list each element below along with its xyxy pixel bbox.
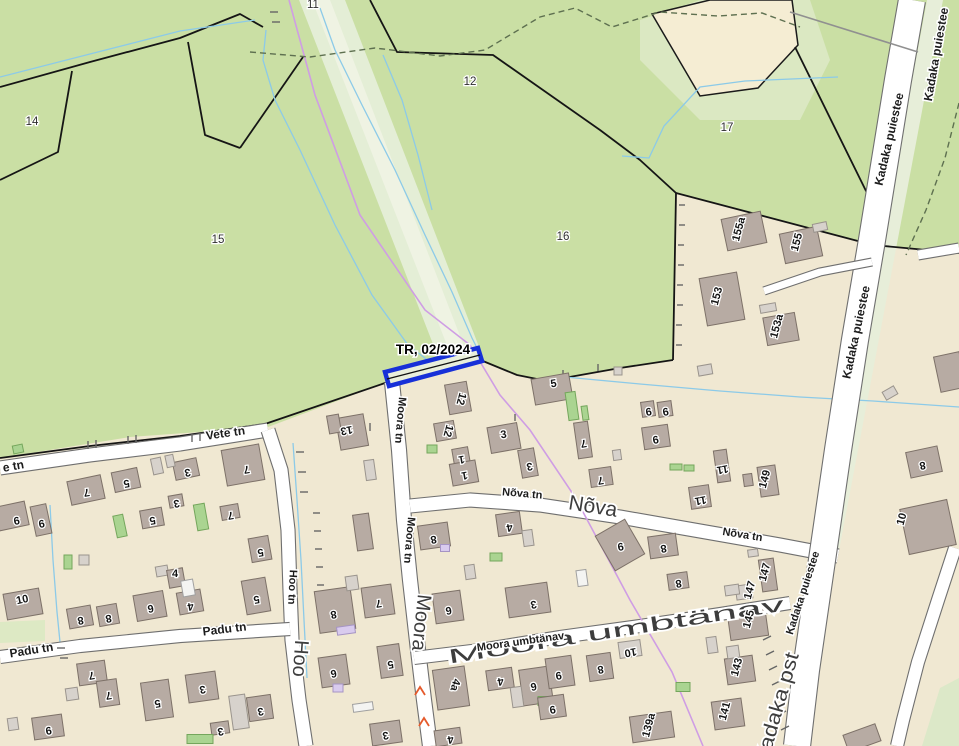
building	[522, 529, 534, 546]
building	[427, 445, 437, 453]
parcel-number: 15	[212, 234, 225, 246]
building	[706, 636, 718, 653]
street-label: Hoo tn	[285, 569, 299, 605]
building	[64, 555, 72, 569]
building	[364, 459, 377, 480]
house-number: 13	[339, 423, 353, 437]
building	[576, 569, 588, 586]
parcel-number: 17	[721, 122, 734, 134]
building	[12, 444, 23, 454]
map-svg[interactable]: 111214151617HooMooraMoora umbtänavNõvaKa…	[0, 0, 959, 746]
building	[676, 683, 690, 692]
building	[670, 464, 682, 470]
building	[65, 687, 79, 701]
building	[748, 549, 759, 557]
building	[724, 584, 739, 596]
building	[333, 684, 343, 692]
building	[900, 500, 957, 555]
parcel-number: 16	[557, 231, 570, 243]
map-canvas[interactable]: 111214151617HooMooraMoora umbtänavNõvaKa…	[0, 0, 959, 746]
building	[327, 414, 342, 434]
house-number: 10	[15, 593, 29, 607]
house-number: 11	[694, 493, 708, 507]
house-number: 11	[716, 462, 730, 476]
parcel-number: 14	[26, 116, 39, 128]
building	[612, 449, 621, 460]
house-number: 10	[623, 645, 637, 659]
building	[187, 735, 213, 744]
padu-patch	[0, 620, 45, 643]
building	[181, 579, 196, 597]
building	[7, 717, 19, 730]
building	[510, 686, 524, 707]
parcel-number: 12	[464, 76, 477, 88]
building	[743, 473, 754, 486]
building	[79, 555, 89, 565]
building	[581, 406, 589, 421]
house-number: 4	[172, 568, 179, 580]
highlight-label: TR, 02/2024	[396, 342, 471, 357]
building	[441, 545, 450, 552]
street-label-large: Hoo	[288, 639, 313, 677]
building	[684, 465, 694, 471]
building	[697, 364, 713, 376]
building	[490, 553, 502, 561]
building	[505, 582, 551, 618]
parcel-number: 11	[307, 0, 319, 11]
building	[345, 575, 359, 591]
building	[614, 367, 622, 375]
building	[464, 564, 476, 579]
